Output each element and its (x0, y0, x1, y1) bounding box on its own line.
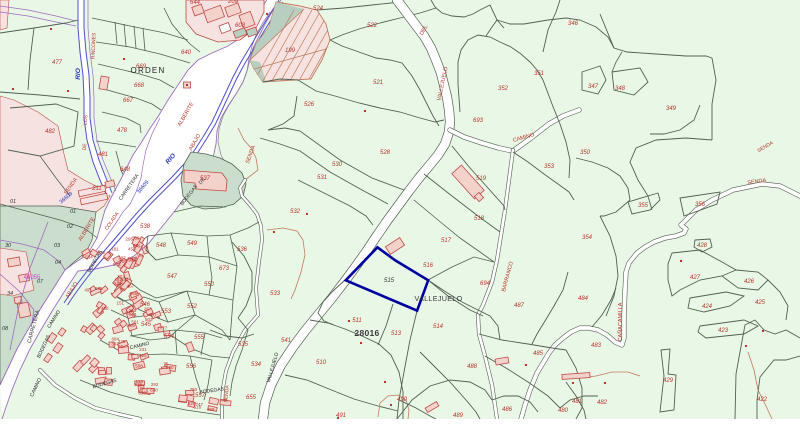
svg-text:356: 356 (695, 202, 706, 208)
svg-text:469: 469 (207, 407, 215, 412)
svg-text:535: 535 (238, 342, 249, 348)
svg-text:517: 517 (441, 238, 452, 244)
svg-text:510: 510 (316, 360, 327, 366)
svg-text:490: 490 (397, 397, 408, 403)
svg-text:667: 667 (123, 98, 134, 104)
svg-text:761: 761 (136, 253, 144, 258)
svg-text:354: 354 (582, 235, 593, 241)
svg-text:30: 30 (5, 243, 12, 249)
svg-text:347: 347 (588, 84, 599, 90)
svg-text:ORDEN: ORDEN (131, 66, 166, 75)
svg-text:482: 482 (597, 400, 608, 406)
svg-text:545: 545 (141, 322, 152, 328)
svg-text:01: 01 (10, 199, 16, 205)
svg-text:08: 08 (2, 326, 9, 332)
svg-text:75: 75 (163, 361, 169, 366)
svg-text:514: 514 (433, 324, 444, 330)
svg-text:01: 01 (70, 209, 76, 215)
svg-text:151: 151 (117, 301, 125, 306)
svg-text:355: 355 (638, 203, 649, 209)
svg-text:209: 209 (227, 0, 239, 5)
svg-text:521: 521 (373, 80, 383, 86)
svg-text:181: 181 (111, 247, 119, 252)
svg-text:518: 518 (474, 216, 485, 222)
svg-text:534: 534 (85, 254, 93, 259)
svg-text:303: 303 (117, 274, 125, 279)
svg-text:CAÑACAMILLA: CAÑACAMILLA (617, 302, 624, 341)
svg-text:528: 528 (380, 150, 391, 156)
svg-text:541: 541 (281, 338, 291, 344)
svg-text:646: 646 (133, 244, 141, 249)
svg-text:423: 423 (718, 328, 729, 334)
svg-text:644: 644 (190, 0, 201, 6)
svg-text:486: 486 (502, 407, 513, 413)
svg-text:648: 648 (120, 167, 131, 173)
svg-text:556: 556 (186, 364, 197, 370)
svg-text:484: 484 (578, 296, 589, 302)
svg-text:346: 346 (568, 21, 579, 27)
svg-text:538: 538 (140, 224, 151, 230)
svg-text:03: 03 (54, 243, 61, 249)
svg-text:630: 630 (150, 388, 158, 393)
svg-text:515: 515 (384, 278, 395, 284)
svg-text:427: 427 (690, 275, 701, 281)
svg-text:350: 350 (580, 150, 591, 156)
svg-text:469: 469 (127, 323, 135, 328)
svg-text:292: 292 (151, 382, 159, 387)
svg-text:489: 489 (453, 413, 464, 419)
svg-text:85: 85 (116, 283, 122, 288)
svg-text:640: 640 (181, 50, 192, 56)
svg-text:426: 426 (744, 279, 755, 285)
svg-text:420: 420 (148, 312, 156, 317)
svg-text:485: 485 (533, 351, 544, 357)
svg-text:553: 553 (161, 309, 172, 315)
svg-text:113: 113 (136, 379, 144, 384)
svg-text:429: 429 (663, 378, 674, 384)
svg-text:531: 531 (317, 175, 327, 181)
svg-text:547: 547 (167, 274, 178, 280)
svg-text:491: 491 (84, 287, 92, 292)
svg-text:VALLEJUELO: VALLEJUELO (414, 294, 462, 303)
svg-text:488: 488 (467, 364, 478, 370)
svg-text:519: 519 (476, 176, 487, 182)
svg-text:548: 548 (156, 243, 167, 249)
svg-text:747: 747 (195, 402, 203, 407)
svg-text:650: 650 (138, 390, 146, 395)
svg-text:481: 481 (98, 152, 108, 158)
svg-text:555: 555 (194, 335, 205, 341)
svg-text:673: 673 (219, 266, 230, 272)
svg-text:125: 125 (139, 353, 147, 358)
svg-text:424: 424 (702, 304, 713, 310)
svg-text:679: 679 (141, 244, 149, 249)
svg-text:487: 487 (514, 303, 525, 309)
svg-text:DE: DE (82, 143, 89, 151)
svg-text:425: 425 (755, 300, 766, 306)
svg-text:603: 603 (235, 23, 246, 29)
svg-text:530: 530 (332, 162, 343, 168)
svg-text:684: 684 (111, 336, 119, 341)
svg-text:694: 694 (480, 281, 491, 287)
svg-text:516: 516 (423, 263, 434, 269)
svg-text:349: 349 (666, 106, 677, 112)
svg-text:04: 04 (55, 260, 61, 266)
svg-text:532: 532 (290, 209, 301, 215)
svg-text:34: 34 (7, 291, 13, 297)
svg-text:211: 211 (91, 186, 102, 192)
svg-text:668: 668 (134, 83, 145, 89)
svg-text:28016: 28016 (354, 328, 379, 338)
svg-text:02: 02 (67, 224, 73, 230)
svg-text:348: 348 (615, 86, 626, 92)
svg-text:554: 554 (164, 334, 175, 340)
svg-text:55: 55 (118, 344, 124, 349)
svg-text:248: 248 (129, 308, 137, 313)
svg-text:353: 353 (544, 164, 555, 170)
svg-text:46055: 46055 (24, 275, 41, 281)
svg-text:533: 533 (270, 291, 281, 297)
svg-text:114: 114 (129, 257, 137, 262)
svg-text:359: 359 (132, 236, 140, 241)
svg-text:480: 480 (558, 408, 569, 414)
svg-text:695: 695 (95, 286, 103, 291)
svg-text:352: 352 (498, 86, 509, 92)
svg-text:693: 693 (473, 118, 484, 124)
svg-text:550: 550 (204, 282, 215, 288)
svg-text:RINCONES: RINCONES (91, 32, 98, 59)
svg-text:482: 482 (45, 129, 56, 135)
svg-text:513: 513 (391, 331, 402, 337)
svg-text:343: 343 (111, 342, 119, 347)
svg-text:546: 546 (140, 302, 151, 308)
svg-text:477: 477 (52, 60, 63, 66)
svg-text:LOS: LOS (83, 114, 90, 125)
svg-text:524: 524 (313, 6, 324, 12)
svg-text:549: 549 (187, 241, 198, 247)
svg-text:481: 481 (572, 399, 582, 405)
svg-text:665: 665 (130, 291, 138, 296)
svg-text:511: 511 (352, 318, 362, 324)
svg-text:467: 467 (127, 283, 135, 288)
svg-text:522: 522 (367, 23, 378, 29)
svg-text:351: 351 (534, 71, 544, 77)
svg-text:RIO: RIO (75, 68, 82, 80)
svg-text:478: 478 (117, 128, 128, 134)
svg-text:552: 552 (187, 304, 198, 310)
svg-text:57: 57 (120, 287, 126, 292)
svg-text:199: 199 (285, 48, 296, 54)
svg-text:508: 508 (135, 363, 143, 368)
svg-text:483: 483 (591, 343, 602, 349)
svg-text:777: 777 (160, 325, 168, 330)
svg-text:534: 534 (251, 362, 262, 368)
svg-text:655: 655 (246, 395, 257, 401)
svg-text:583: 583 (113, 262, 121, 267)
svg-text:750: 750 (190, 387, 198, 392)
svg-text:428: 428 (697, 243, 708, 249)
svg-text:526: 526 (304, 102, 315, 108)
svg-text:400: 400 (101, 306, 109, 311)
svg-text:422: 422 (757, 397, 768, 403)
svg-text:536: 536 (237, 247, 248, 253)
